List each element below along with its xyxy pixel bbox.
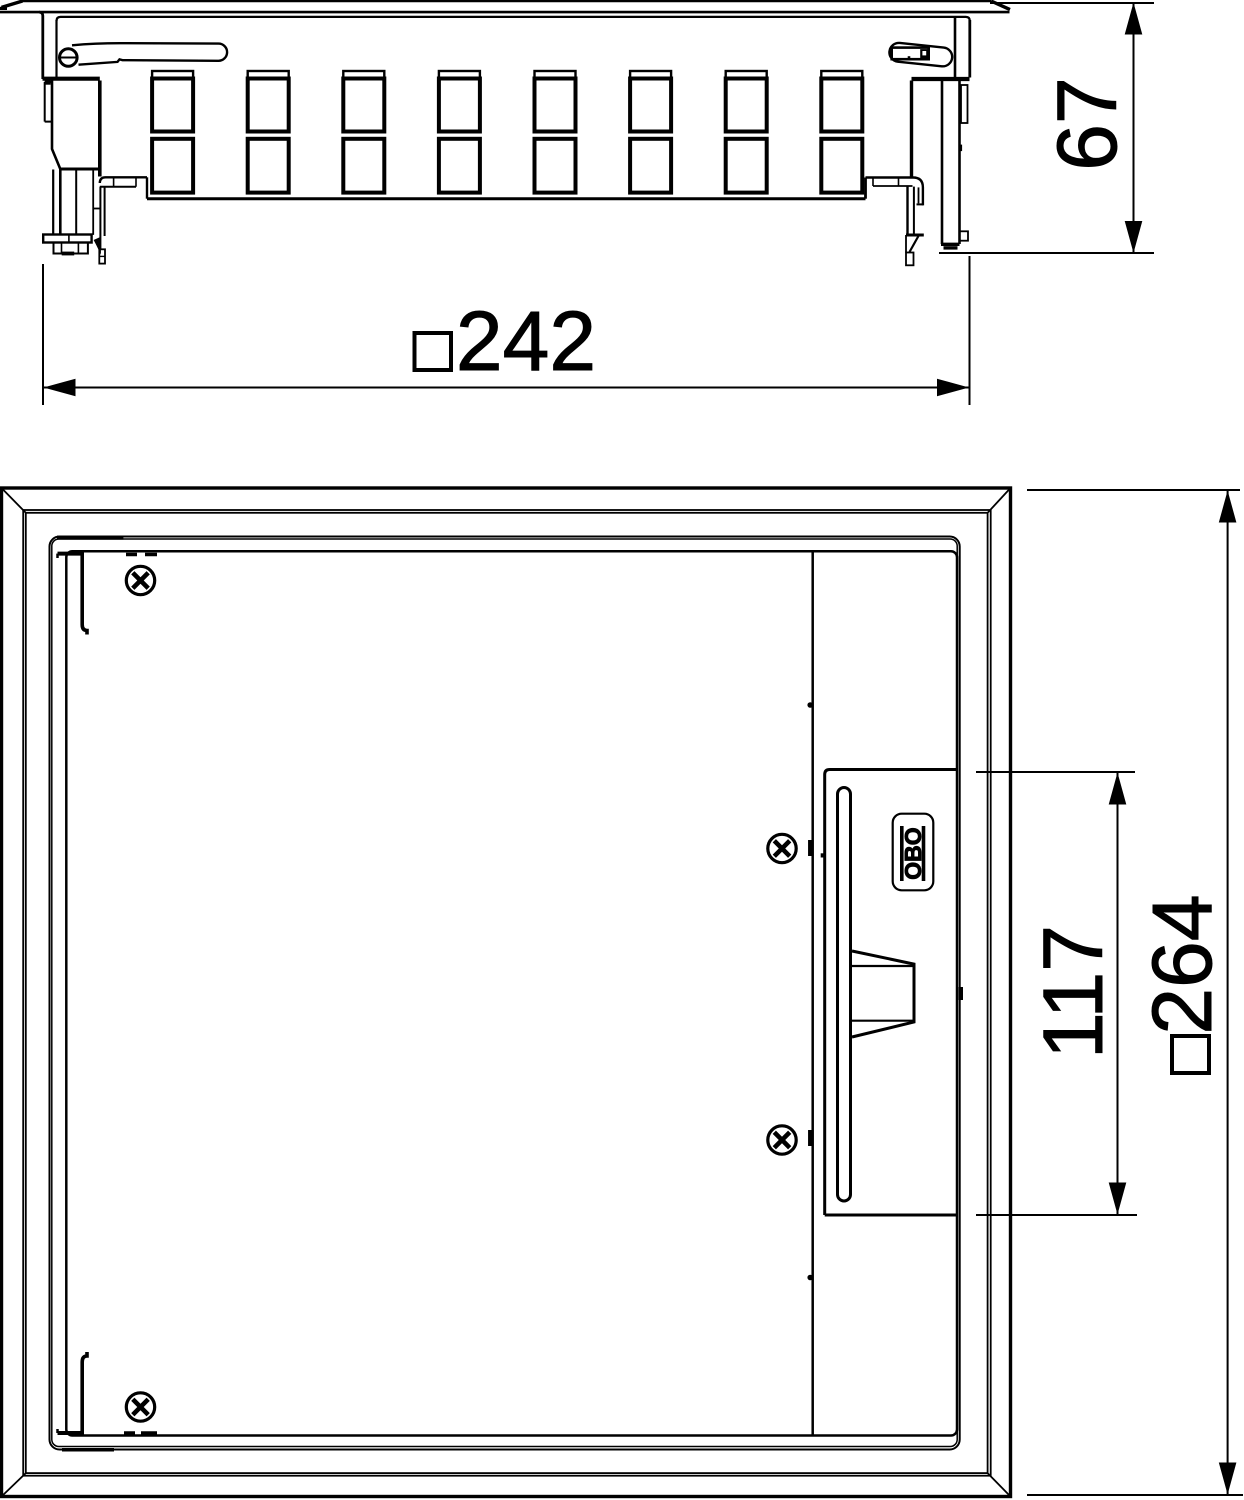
- svg-text:67: 67: [1040, 77, 1134, 170]
- svg-text:264: 264: [1135, 894, 1229, 1034]
- svg-text:117: 117: [1026, 925, 1120, 1059]
- svg-text:242: 242: [456, 294, 596, 388]
- svg-text:OBO: OBO: [900, 827, 926, 879]
